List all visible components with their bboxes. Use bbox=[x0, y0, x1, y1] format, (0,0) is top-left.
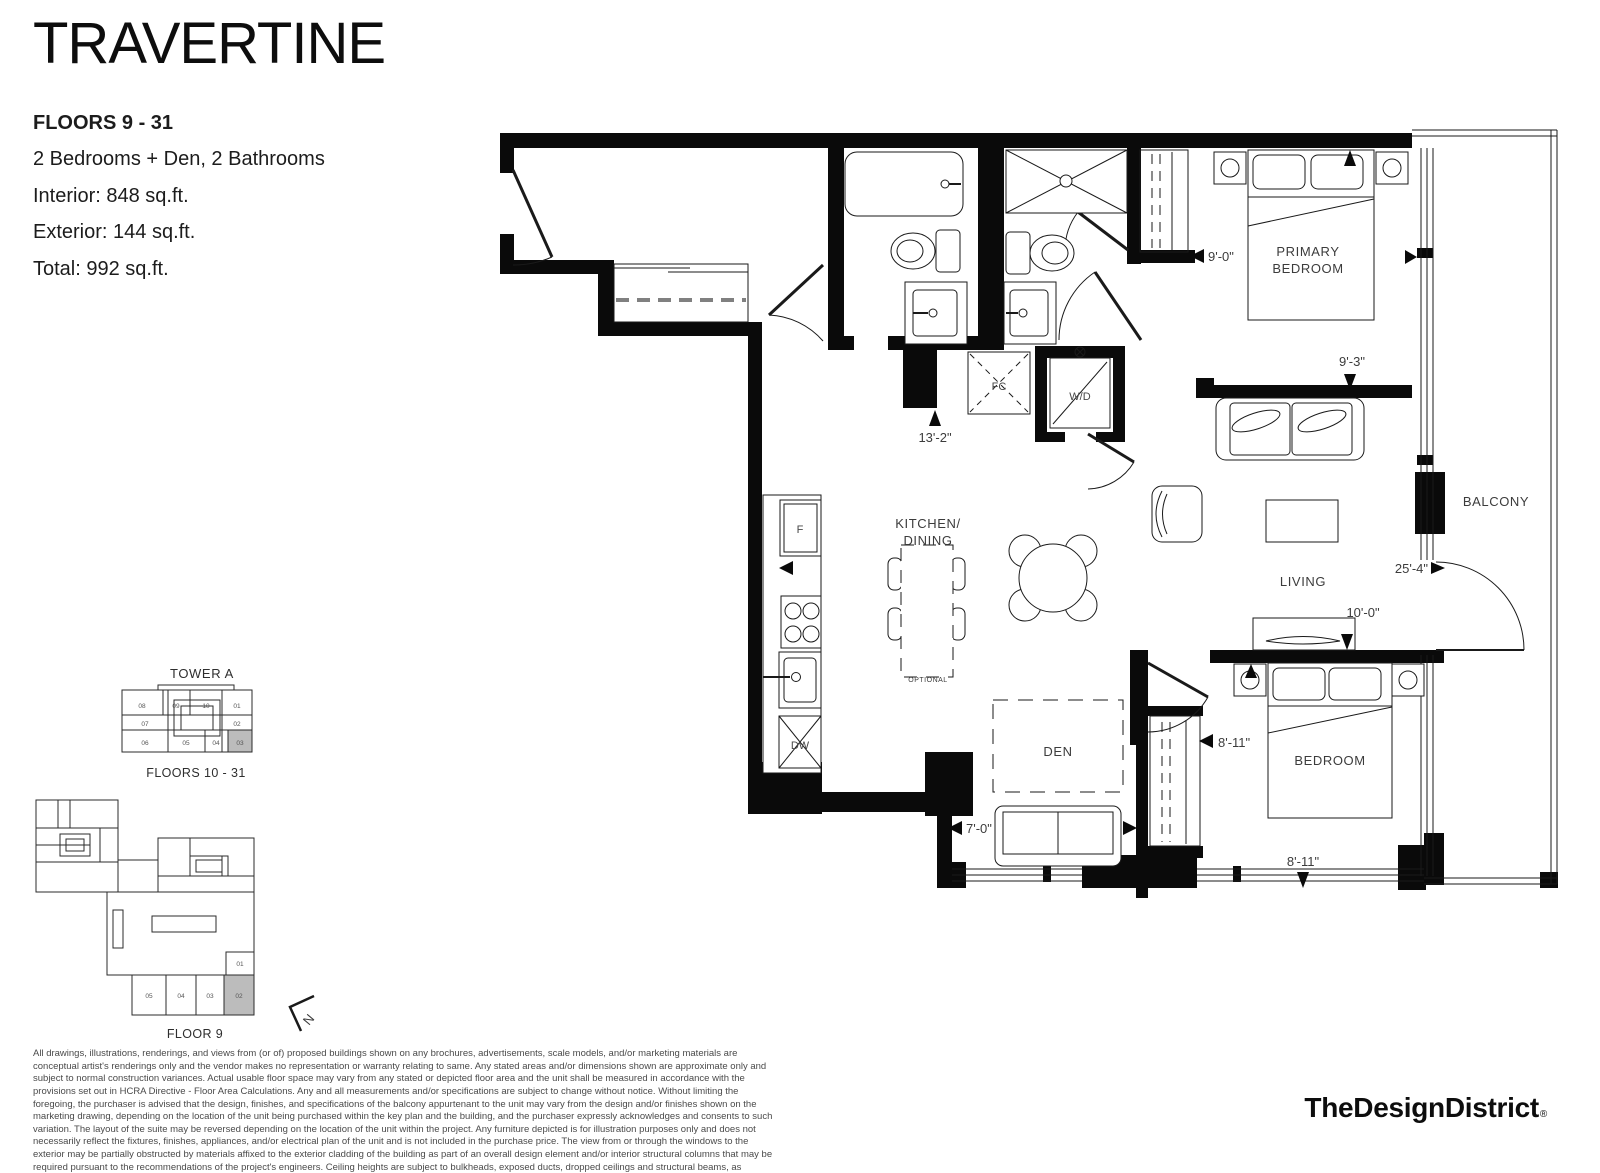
keyplan-floor-9: 05 04 03 02 01 FLOOR 9 bbox=[36, 800, 254, 1041]
bedroom-closet bbox=[1150, 716, 1200, 846]
dim-primary-width: 9'-3" bbox=[1339, 354, 1365, 369]
unit-08: 08 bbox=[138, 703, 146, 710]
unit-10: 10 bbox=[202, 703, 210, 710]
entry-closet bbox=[614, 264, 748, 322]
bathtub bbox=[845, 152, 963, 216]
fridge-label: F bbox=[797, 524, 804, 536]
toilet-main bbox=[891, 230, 960, 272]
vanity-ensuite bbox=[1004, 282, 1056, 344]
living-sofa bbox=[1216, 398, 1364, 460]
unit-09: 09 bbox=[172, 703, 180, 710]
north-label: N bbox=[300, 1011, 318, 1028]
primary-closet bbox=[1140, 150, 1188, 252]
unit-01: 01 bbox=[233, 703, 241, 710]
shower bbox=[1006, 150, 1127, 213]
dining-table-round bbox=[1009, 535, 1097, 621]
unit-02: 02 bbox=[235, 993, 243, 1000]
dim-primary-closet: 9'-0" bbox=[1208, 249, 1234, 264]
unit-06: 06 bbox=[141, 740, 149, 747]
washer-dryer-label: W/D bbox=[1069, 391, 1090, 403]
floorplan-page: TRAVERTINE FLOORS 9 - 31 2 Bedrooms + De… bbox=[0, 0, 1600, 1173]
toilet-ensuite bbox=[1006, 232, 1074, 274]
brand-logo-text: TheDesignDistrict bbox=[1304, 1092, 1539, 1123]
dishwasher-label: DW bbox=[791, 740, 810, 752]
keyplan-tower-a: TOWER A 08 09 10 01 07 bbox=[122, 666, 252, 780]
legal-disclaimer: All drawings, illustrations, renderings,… bbox=[33, 1048, 775, 1173]
kitchen bbox=[763, 495, 821, 773]
washer-dryer bbox=[1050, 347, 1110, 428]
north-arrow-icon: N bbox=[290, 996, 317, 1031]
floorplan-drawing: PRIMARY BEDROOM BEDROOM LIVING DEN BALCO… bbox=[0, 0, 1600, 1173]
unit-02: 02 bbox=[233, 721, 241, 728]
dim-den: 7'-0" bbox=[966, 821, 992, 836]
dim-bedroom-width: 8'-11" bbox=[1218, 735, 1251, 750]
coffee-table bbox=[1266, 500, 1338, 542]
brand-logo: TheDesignDistrict® bbox=[1304, 1092, 1547, 1124]
floor-9-caption: FLOOR 9 bbox=[167, 1027, 223, 1041]
unit-01: 01 bbox=[236, 961, 244, 968]
den-sofa bbox=[995, 806, 1121, 866]
dim-living-length: 25'-4" bbox=[1395, 561, 1429, 576]
tower-a-caption: FLOORS 10 - 31 bbox=[146, 766, 245, 780]
primary-bedroom-label: PRIMARY bbox=[1276, 244, 1339, 259]
unit-07: 07 bbox=[141, 721, 149, 728]
kitchen-label: KITCHEN/ bbox=[895, 516, 960, 531]
unit-04: 04 bbox=[212, 740, 220, 747]
living-label: LIVING bbox=[1280, 574, 1326, 589]
primary-bed bbox=[1214, 150, 1408, 320]
unit-03: 03 bbox=[236, 740, 244, 747]
cooktop bbox=[781, 596, 821, 648]
primary-bedroom-label-2: BEDROOM bbox=[1272, 261, 1343, 276]
registered-mark: ® bbox=[1540, 1109, 1547, 1120]
optional-label: OPTIONAL bbox=[908, 677, 947, 684]
dim-entry: 13'-2" bbox=[918, 430, 952, 445]
den-label: DEN bbox=[1043, 744, 1072, 759]
unit-05: 05 bbox=[182, 740, 190, 747]
vanity-main bbox=[905, 282, 967, 344]
unit-03: 03 bbox=[206, 993, 214, 1000]
bedroom-bed bbox=[1234, 663, 1424, 818]
unit-05: 05 bbox=[145, 993, 153, 1000]
dim-living-width: 10'-0" bbox=[1346, 605, 1380, 620]
balcony-label: BALCONY bbox=[1463, 494, 1529, 509]
tower-a-title: TOWER A bbox=[170, 666, 234, 681]
dim-bedroom-length: 8'-11" bbox=[1287, 854, 1320, 869]
fan-coil-label: FC bbox=[992, 381, 1007, 393]
tv-console bbox=[1253, 618, 1355, 650]
armchair bbox=[1152, 486, 1202, 542]
unit-04: 04 bbox=[177, 993, 185, 1000]
bedroom-label: BEDROOM bbox=[1294, 753, 1365, 768]
dining-table-optional bbox=[888, 545, 965, 677]
kitchen-label-2: DINING bbox=[903, 533, 952, 548]
